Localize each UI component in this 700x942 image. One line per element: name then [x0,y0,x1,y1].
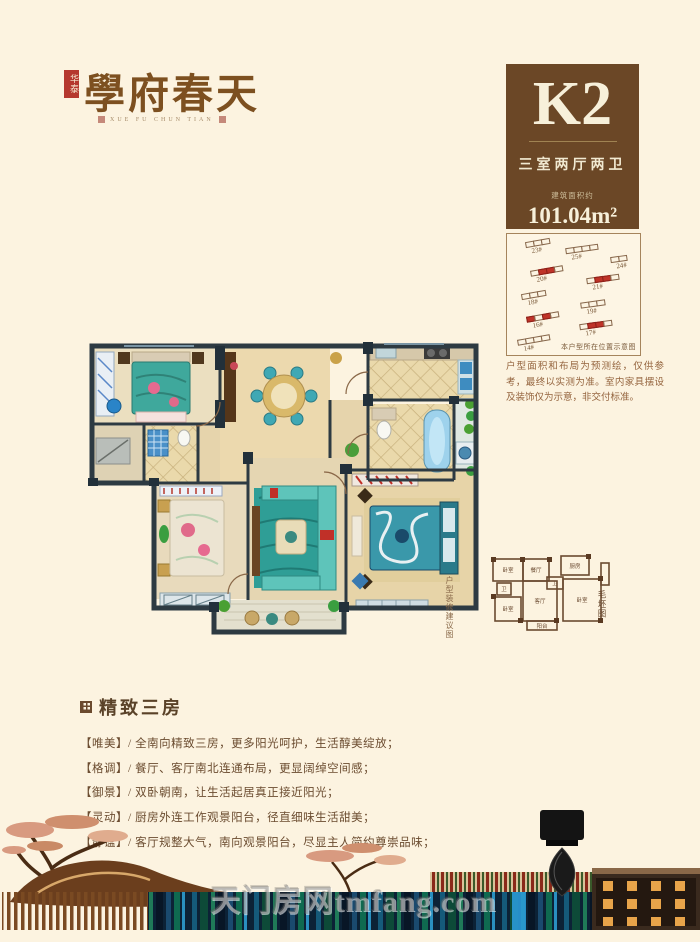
bedroom-1 [96,352,204,422]
unit-card: K2 三室两厅两卫 建筑面积约 101.04m² [506,64,639,229]
logo-pinyin: XUE FU CHUN TIAN [110,117,214,123]
building-unit [596,299,606,306]
room-label: 餐厅 [530,566,542,574]
room-label: 卧室 [576,596,588,604]
site-plan-building: 16# [526,311,560,331]
room-label: 客厅 [534,597,546,605]
lit-buildings [592,868,700,930]
room-label: 卫 [501,586,507,593]
site-plan-building: 18# [521,290,547,308]
site-plan-building: 20# [530,265,564,285]
building-number: 19# [586,305,606,316]
blue-accent-stripe [512,892,526,930]
entry-area [96,438,130,464]
watermark-text: 天门房网tmfang.com [210,876,496,920]
project-logo: 华泰 學府春天 XUE FU CHUN TIAN [64,60,264,152]
unit-code: K2 [506,72,639,137]
building-unit [540,334,550,341]
building-number: 21# [592,280,620,292]
building-number: 18# [527,296,547,308]
divider [529,141,617,142]
room-label: 卧室 [502,566,514,574]
room-label: 阳台 [536,622,548,630]
living-room [252,486,336,590]
logo-seal: 华泰 [64,70,79,98]
site-plan-building: 23# [525,238,551,256]
building-unit [588,244,598,251]
disclaimer-text: 户型面积和布局为预测绘，仅供参考，最终以实测为准。室内家具摆设及装饰仅为示意，非… [506,360,664,407]
schematic-caption: 毛坯图 [596,590,608,619]
project-title: 學府春天 [84,60,260,120]
floorplan-image [84,338,482,642]
site-plan-building: 25# [565,244,599,263]
mini-seal-icon [98,116,105,123]
building-number: 24# [616,261,628,271]
poster-page: 华泰 學府春天 XUE FU CHUN TIAN K2 三室两厅两卫 建筑面积约… [0,0,700,942]
unit-area: 101.04m² [506,203,639,229]
unit-layout: 三室两厅两卫 [506,154,639,174]
site-plan-building: 24# [610,255,628,271]
site-plan-building: 17# [579,320,613,339]
room-label: 卫 [552,580,558,587]
room-label: 厨房 [569,562,581,570]
building-number: 17# [585,326,613,338]
section-seal-icon [80,701,92,713]
logo-subtitle: XUE FU CHUN TIAN [98,116,226,123]
unit-area-label: 建筑面积约 [506,190,639,201]
site-location-diagram: 23#25#24#20#21#18#19#16#17#14# 本户型所在位置示意… [506,233,641,356]
site-plan-building: 14# [517,334,551,354]
building-number: 23# [531,244,551,256]
schematic-plan: 卧室 餐厅 厨房 卫 卫 卧室 客厅 卧室 阳台 [487,551,613,635]
floorplan-caption: 户型装修建议图 [444,576,455,639]
site-plan-building: 21# [586,274,620,293]
features-heading-row: 精致三房 [80,694,460,720]
features-heading: 精致三房 [99,694,183,720]
site-plan-building: 19# [581,299,607,317]
feature-item: 【御景】/ 双卧朝南，让生活起居真正接近阳光； [80,781,460,806]
room-label: 卧室 [502,605,514,613]
site-plan-caption: 本户型所在位置示意图 [561,342,636,352]
feature-item: 【唯美】/ 全南向精致三房，更多阳光呵护，生活醇美绽放； [80,732,460,757]
mini-seal-icon [219,116,226,123]
comb-stripes-left [2,892,148,930]
feature-item: 【格调】/ 餐厅、客厅南北连通布局，更显阔绰空间感； [80,757,460,782]
site-plan-buildings: 23#25#24#20#21#18#19#16#17#14# [507,234,640,355]
